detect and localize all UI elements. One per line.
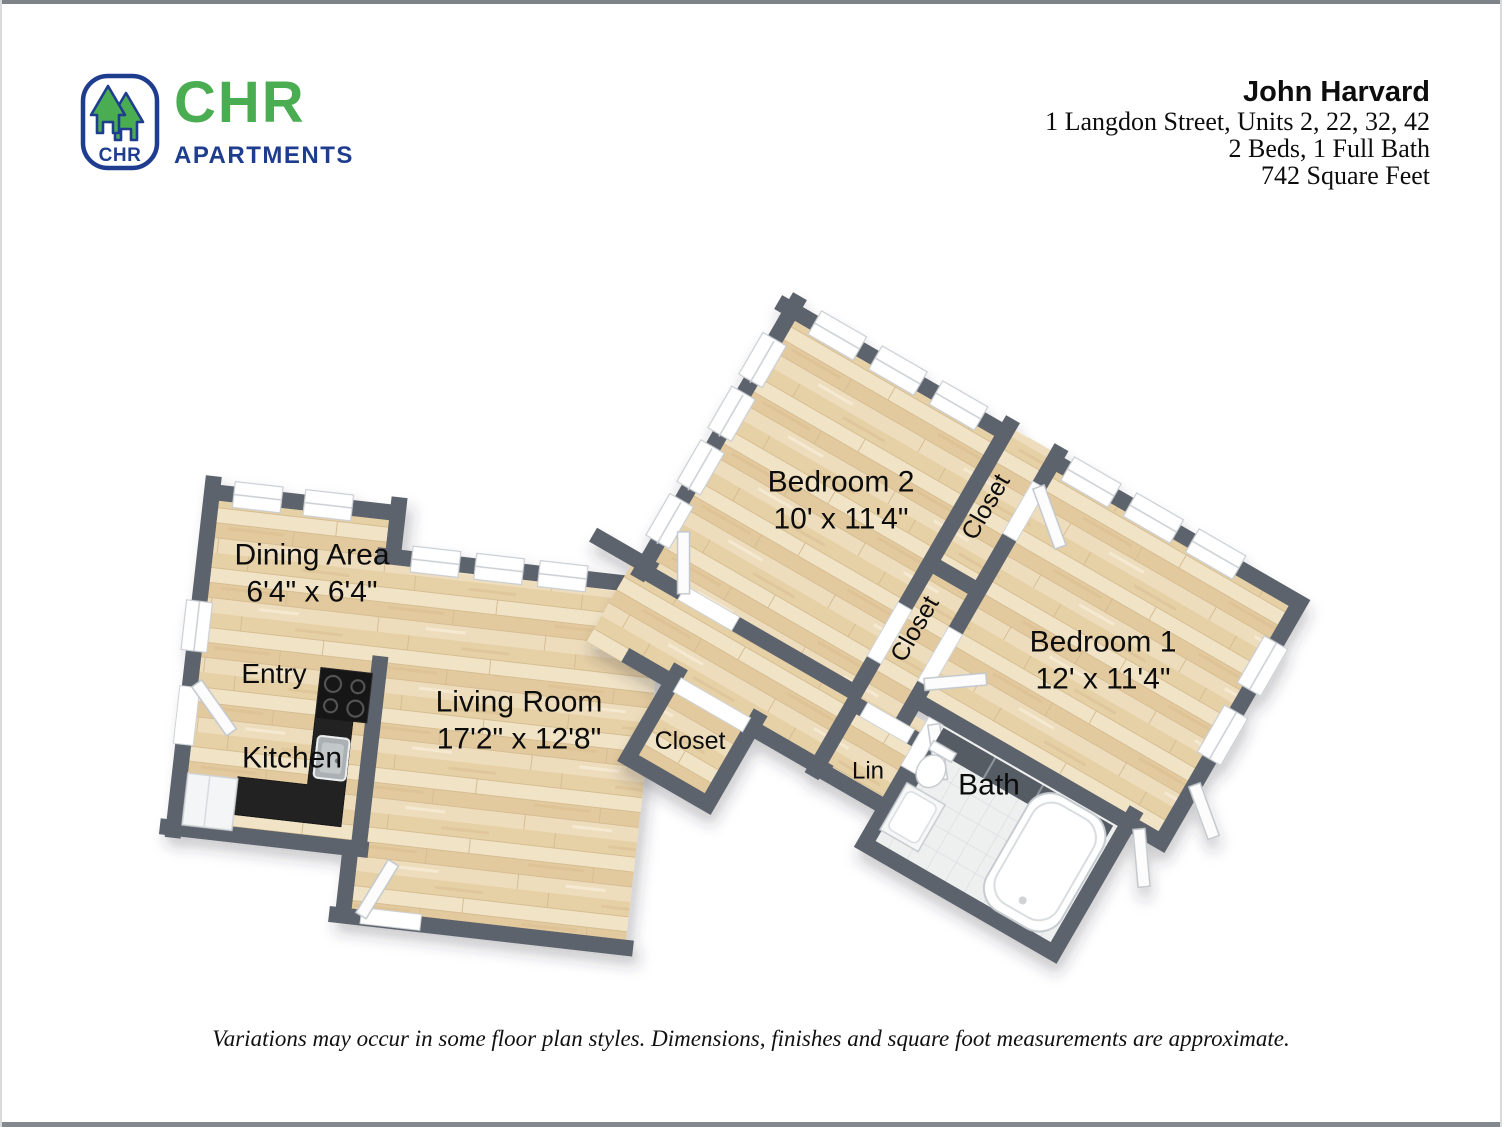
- floorplan-page: CHR CHR APARTMENTS John Harvard 1 Langdo…: [0, 0, 1502, 1127]
- chr-logo: CHR CHR APARTMENTS: [80, 73, 354, 171]
- top-border: [2, 0, 1500, 4]
- building-info: John Harvard 1 Langdon Street, Units 2, …: [1045, 76, 1430, 189]
- brand-subtitle: APARTMENTS: [174, 142, 354, 170]
- building-title: John Harvard: [1045, 76, 1430, 108]
- left-wing: [152, 478, 672, 954]
- footer-disclaimer: Variations may occur in some floor plan …: [2, 1026, 1500, 1052]
- building-address: 1 Langdon Street, Units 2, 22, 32, 42: [1045, 108, 1430, 135]
- bottom-border: [2, 1122, 1500, 1127]
- bedroom-wing: [512, 272, 1347, 1034]
- sink-basin: [319, 742, 344, 774]
- brand-name: CHR: [174, 75, 354, 131]
- brand-wordmark: CHR APARTMENTS: [174, 73, 354, 171]
- bedroom2-door-leaf-icon: [678, 532, 690, 594]
- chr-logo-mark-icon: CHR: [80, 73, 160, 171]
- exterior-door-leaf-icon: [1189, 783, 1219, 840]
- building-square-feet: 742 Square Feet: [1045, 162, 1430, 189]
- stove-icon: [315, 667, 372, 723]
- building-beds-baths: 2 Beds, 1 Full Bath: [1045, 135, 1430, 162]
- logo-monogram: CHR: [99, 145, 142, 166]
